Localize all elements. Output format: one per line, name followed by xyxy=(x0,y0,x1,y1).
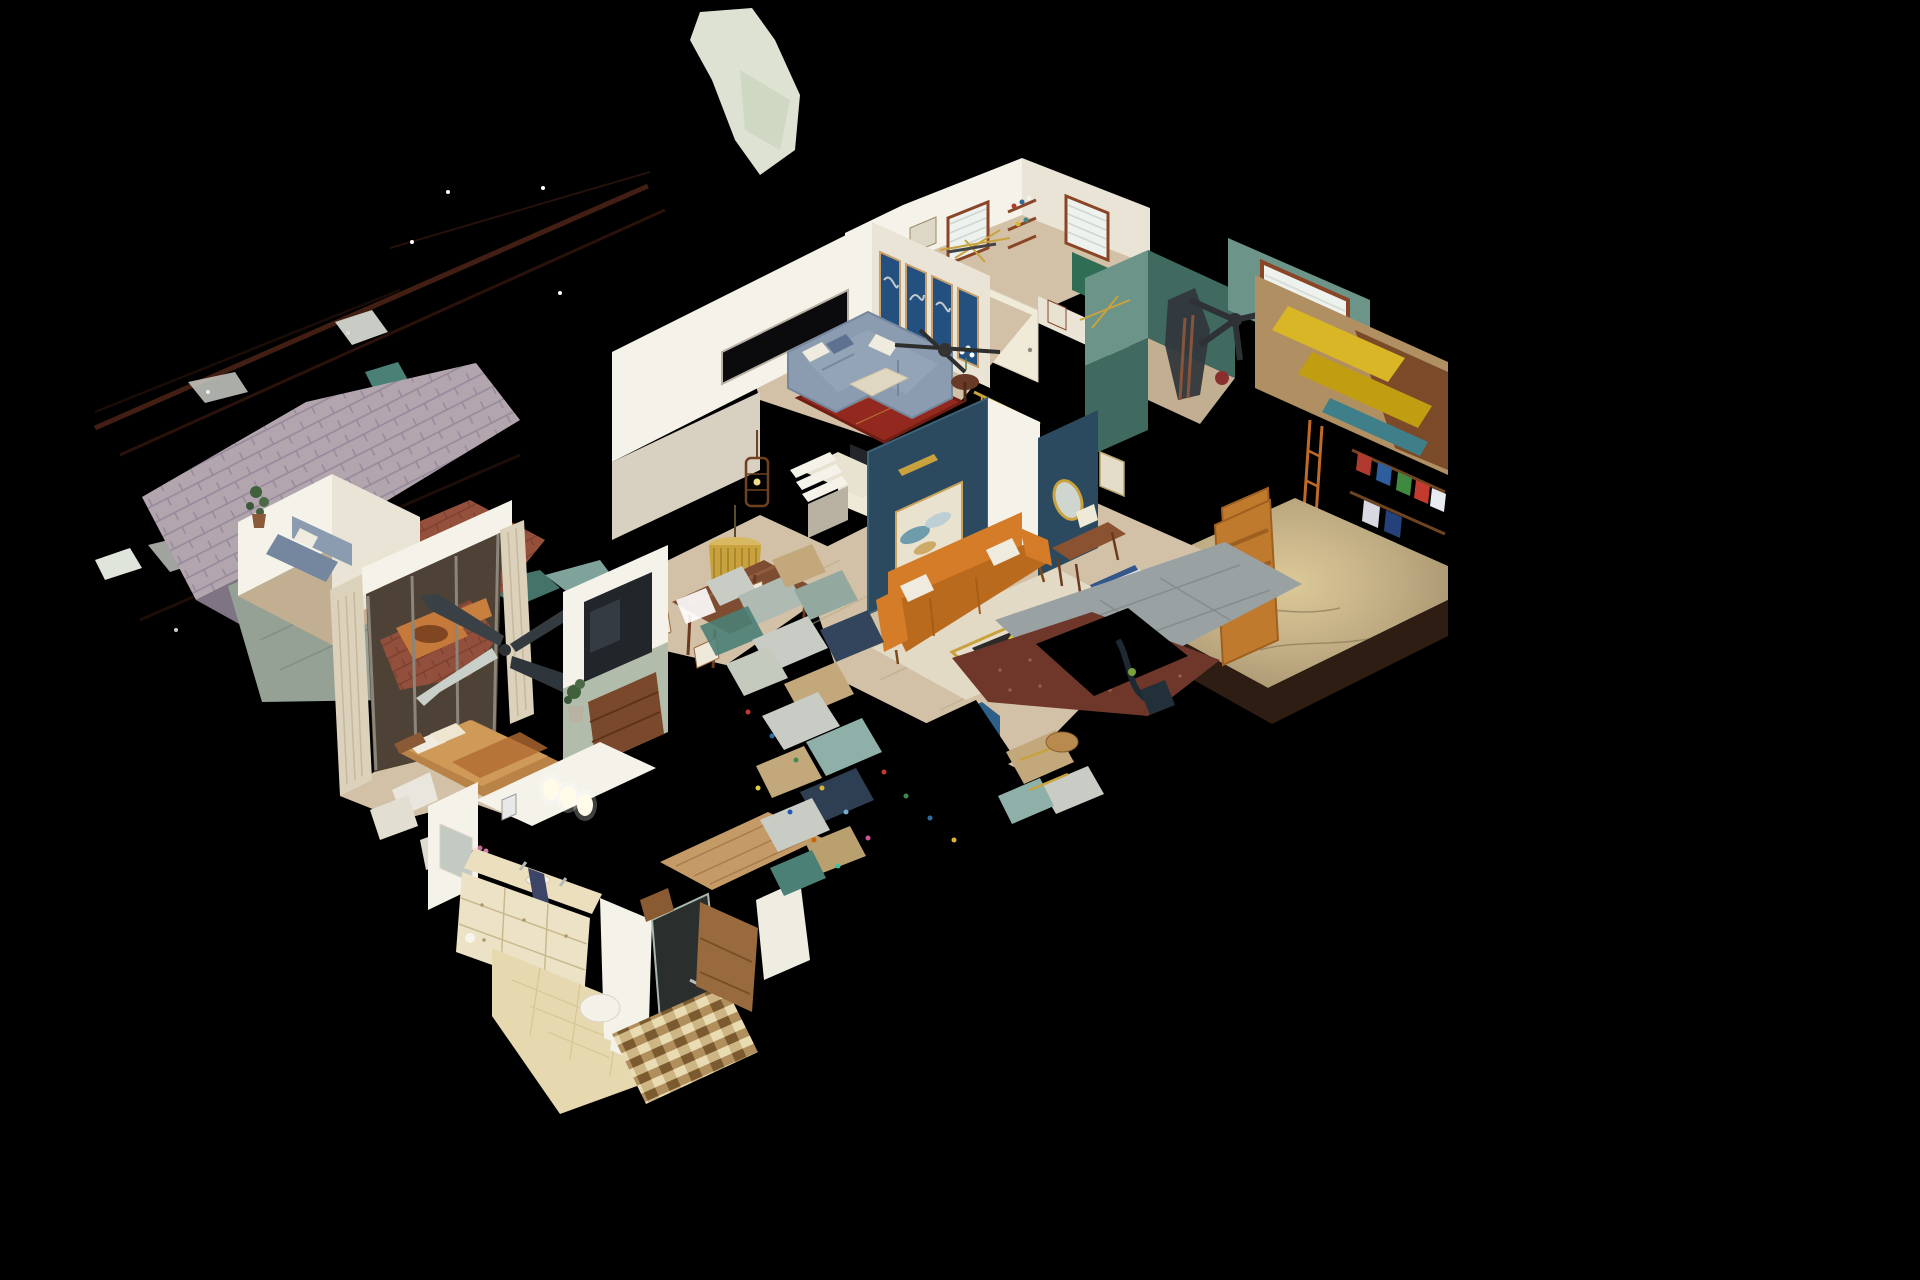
wicker-basket xyxy=(1046,732,1078,752)
dollhouse-3d-viewport[interactable] xyxy=(0,0,1920,1280)
toilet-paper-roll xyxy=(465,933,475,943)
dollhouse-scene xyxy=(0,0,1920,1280)
